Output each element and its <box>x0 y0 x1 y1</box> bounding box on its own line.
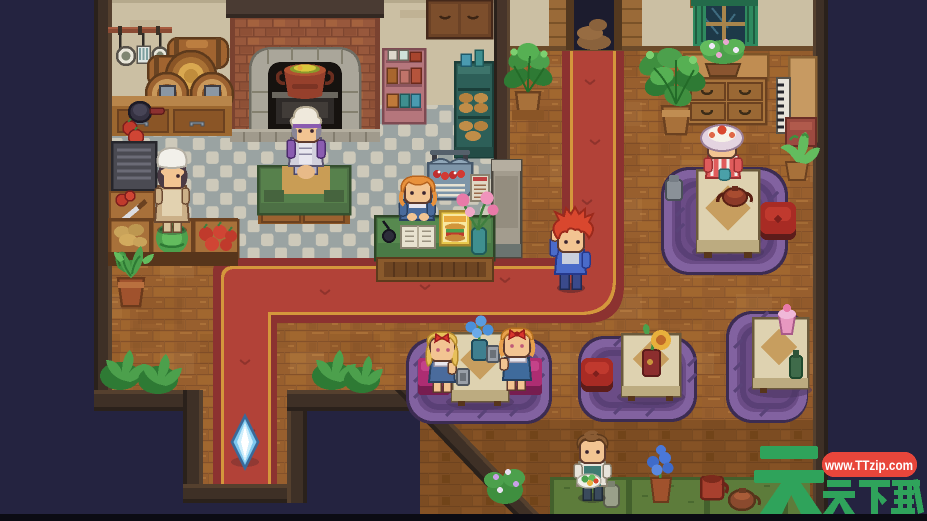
svg-text:www.TTzip.com: www.TTzip.com <box>824 457 913 473</box>
